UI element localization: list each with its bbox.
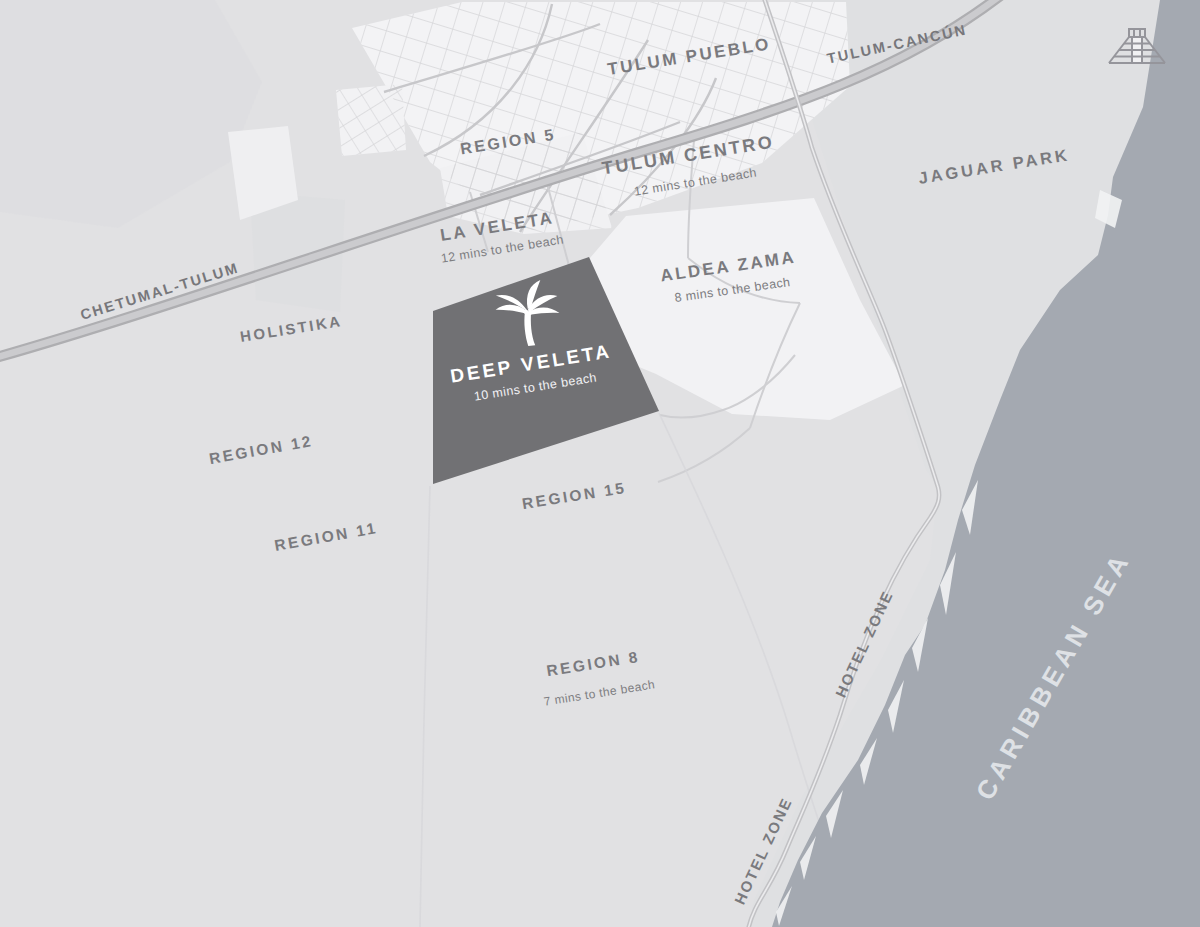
street-grid-west-block [336,84,406,156]
tulum-map: CHETUMAL-TULUM TULUM-CANCÚN REGION 5 TUL… [0,0,1200,927]
map-canvas: CHETUMAL-TULUM TULUM-CANCÚN REGION 5 TUL… [0,0,1200,927]
